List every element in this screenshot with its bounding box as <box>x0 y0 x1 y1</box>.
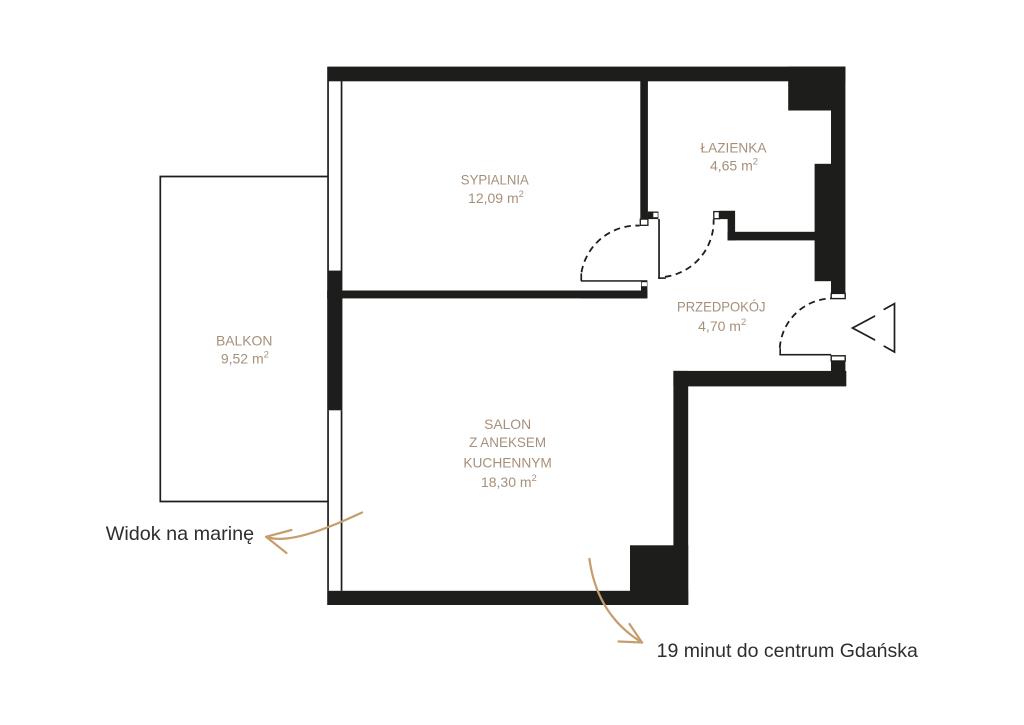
svg-text:Z ANEKSEM: Z ANEKSEM <box>469 434 546 450</box>
svg-text:ŁAZIENKA: ŁAZIENKA <box>701 140 768 156</box>
svg-text:19 minut do centrum Gdańska: 19 minut do centrum Gdańska <box>657 640 918 662</box>
svg-text:KUCHENNYM: KUCHENNYM <box>463 455 552 471</box>
svg-text:9,52 m2: 9,52 m2 <box>221 350 269 367</box>
svg-text:SALON: SALON <box>484 416 531 432</box>
svg-text:PRZEDPOKÓJ: PRZEDPOKÓJ <box>677 299 766 315</box>
svg-text:BALKON: BALKON <box>216 332 273 348</box>
svg-text:4,70 m2: 4,70 m2 <box>698 317 746 334</box>
svg-text:SYPIALNIA: SYPIALNIA <box>461 172 530 188</box>
svg-text:12,09 m2: 12,09 m2 <box>468 189 524 206</box>
svg-text:Widok na marinę: Widok na marinę <box>106 523 254 545</box>
svg-text:18,30 m2: 18,30 m2 <box>481 473 537 490</box>
svg-text:4,65 m2: 4,65 m2 <box>710 157 758 174</box>
